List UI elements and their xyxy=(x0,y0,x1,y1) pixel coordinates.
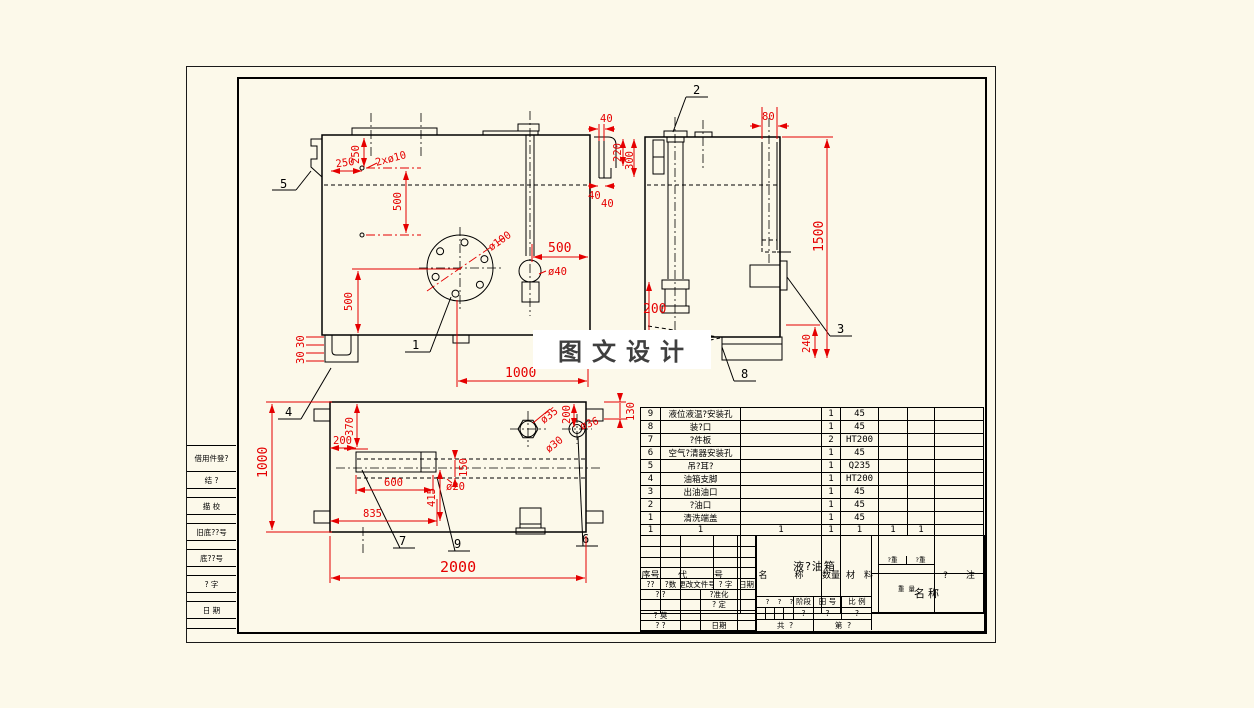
strip-row xyxy=(187,541,236,550)
name-label: 名称 xyxy=(872,574,984,613)
strip-row: 描 校 xyxy=(187,498,236,515)
strip-row: 结 ? xyxy=(187,472,236,489)
strip-row xyxy=(187,619,236,629)
part-row: 5吊?耳? 1Q235 xyxy=(641,460,984,473)
sheet-count-row: 共 ? 第 ? xyxy=(756,620,872,631)
stage-value-row: ? ? ? xyxy=(756,608,872,620)
stage-marks: ? ? ? ? xyxy=(757,596,794,608)
part-row: 7?件板 2HT200 xyxy=(641,434,984,447)
part-row: 9液位液温?安装孔 145 xyxy=(641,408,984,421)
strip-row xyxy=(187,567,236,576)
signature-grid: ? ??准化 ? 定 ? 莫 ? ?日期 xyxy=(641,590,756,631)
strip-row: ? 字 xyxy=(187,576,236,593)
part-row: 2?油口 145 xyxy=(641,499,984,512)
name-block: 名称 xyxy=(871,536,984,630)
strip-row: 旧底??号 xyxy=(187,524,236,541)
strip-row: 借用件登? xyxy=(187,446,236,472)
strip-row: 底??号 xyxy=(187,550,236,567)
blank-cell xyxy=(872,536,984,574)
stage-header-row: ? ? ? ? 阶段 田 号 比 例 xyxy=(756,596,872,608)
count-row: 111 111 1 xyxy=(641,525,984,536)
watermark: 图 文 设 计 xyxy=(533,330,711,369)
part-row: 6空气?清器安装孔 145 xyxy=(641,447,984,460)
margin-signature-strip: 借用件登? 结 ? 描 校 旧底??号 底??号 ? 字 日 期 xyxy=(187,445,236,630)
cad-drawing-canvas: ø100 5 1 250 250 2xø10 500 500 xyxy=(0,0,1254,708)
revision-grid xyxy=(641,536,756,579)
strip-row: 日 期 xyxy=(187,602,236,619)
part-row: 1清洗端盖 145 xyxy=(641,512,984,525)
strip-row xyxy=(187,515,236,524)
strip-row xyxy=(187,593,236,602)
part-row: 3出油油口 145 xyxy=(641,486,984,499)
revision-header-row: ?? ?数 更改文件号 ? 字 日期 xyxy=(641,579,756,590)
drawing-title: 液?油箱 xyxy=(756,536,872,597)
strip-row xyxy=(187,489,236,498)
part-row: 8装?口 145 xyxy=(641,421,984,434)
title-block: ?? ?数 更改文件号 ? 字 日期 ? ??准化 ? 定 ? 莫 ? ?日期 … xyxy=(640,535,985,632)
blank-cell xyxy=(872,613,984,630)
part-row: 4油箱支脚 1HT200 xyxy=(641,473,984,486)
